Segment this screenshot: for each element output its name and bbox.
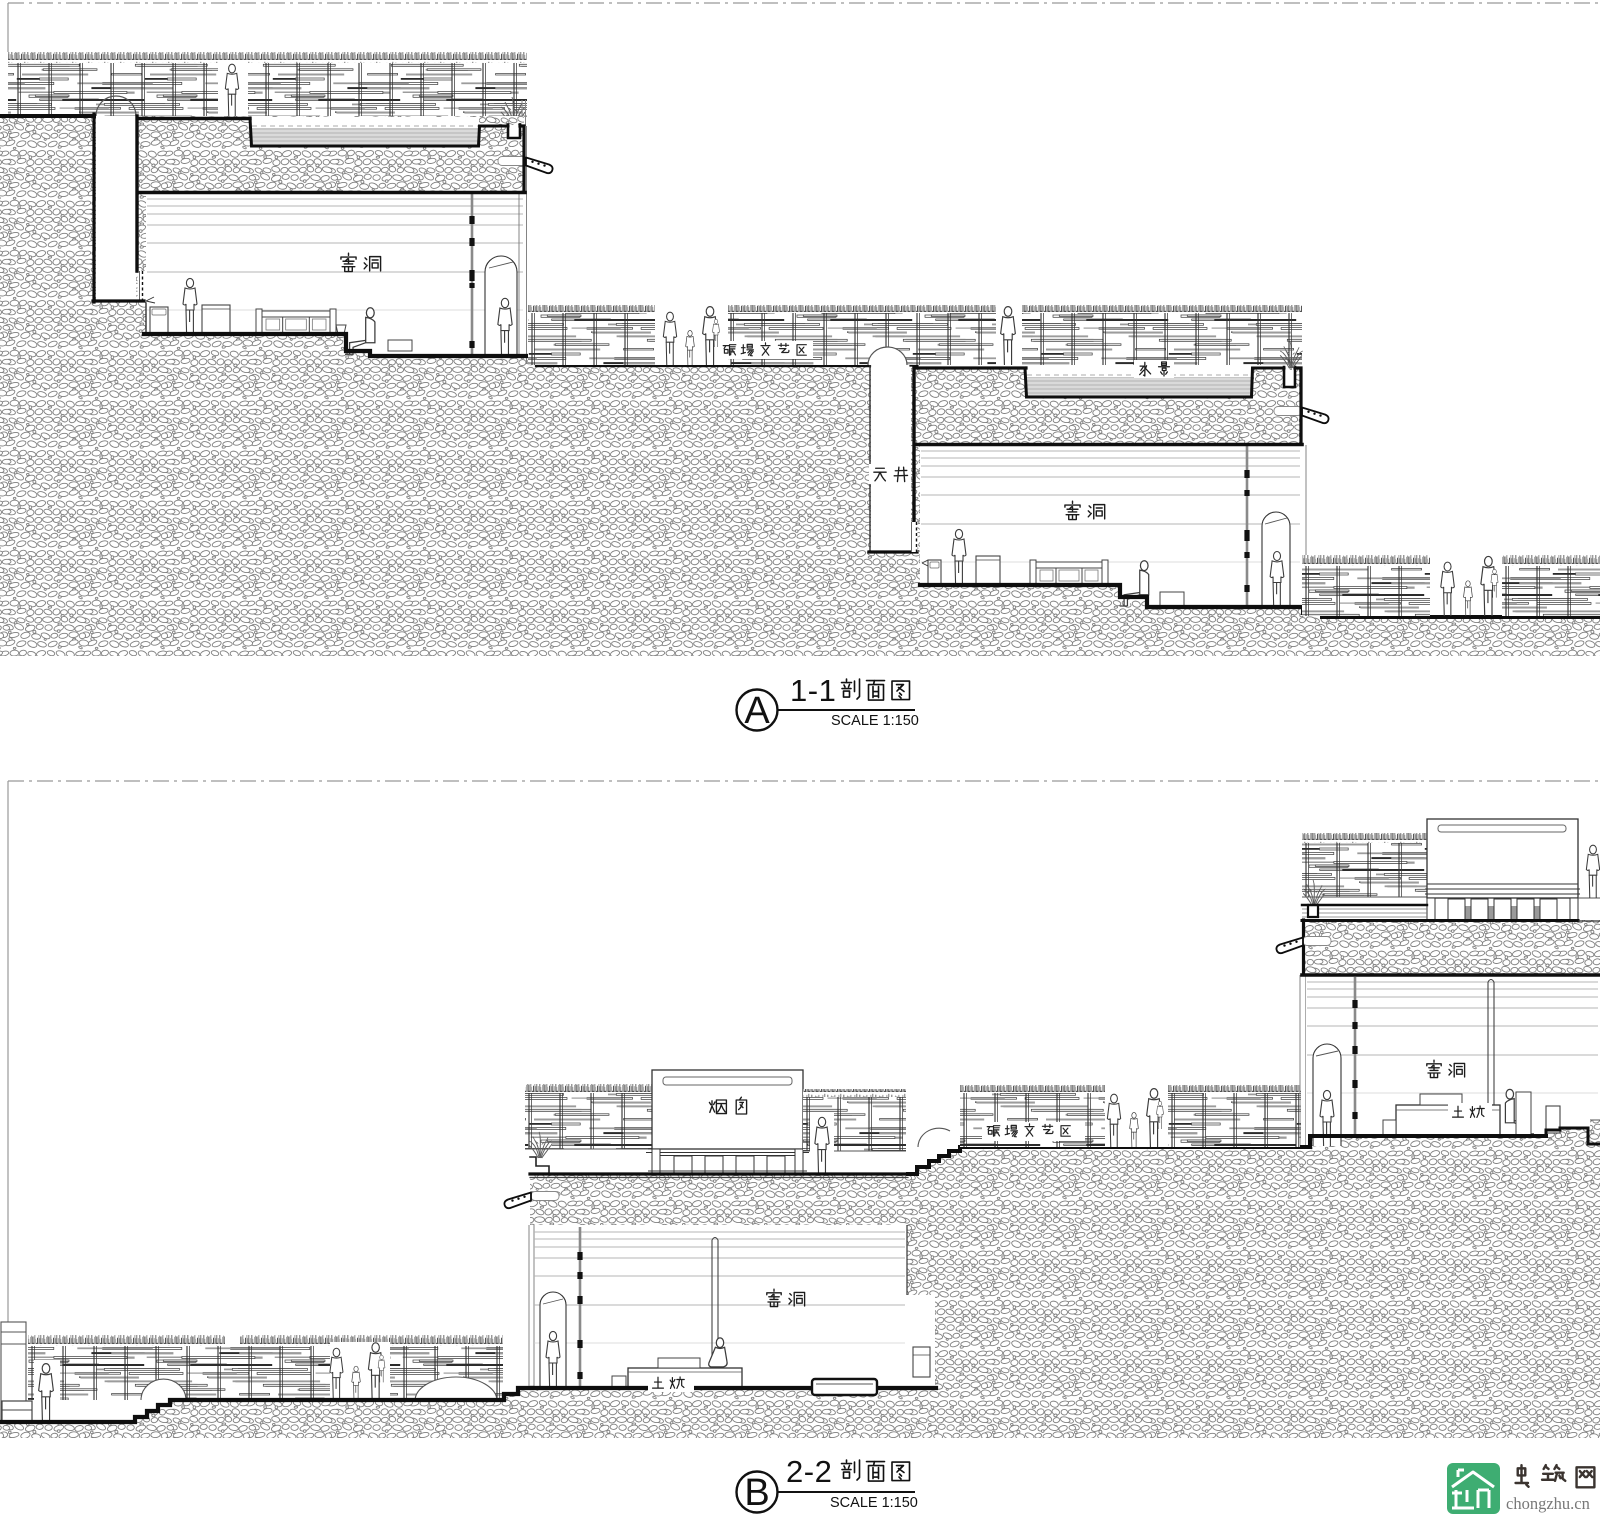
svg-text:A: A	[744, 690, 770, 732]
svg-text:SCALE 1:150: SCALE 1:150	[831, 713, 919, 729]
svg-text:2-2: 2-2	[786, 1454, 832, 1489]
svg-text:chongzhu.cn: chongzhu.cn	[1506, 1494, 1590, 1513]
svg-text:SCALE 1:150: SCALE 1:150	[830, 1495, 918, 1511]
svg-text:B: B	[744, 1472, 769, 1514]
svg-text:1-1: 1-1	[790, 673, 836, 708]
